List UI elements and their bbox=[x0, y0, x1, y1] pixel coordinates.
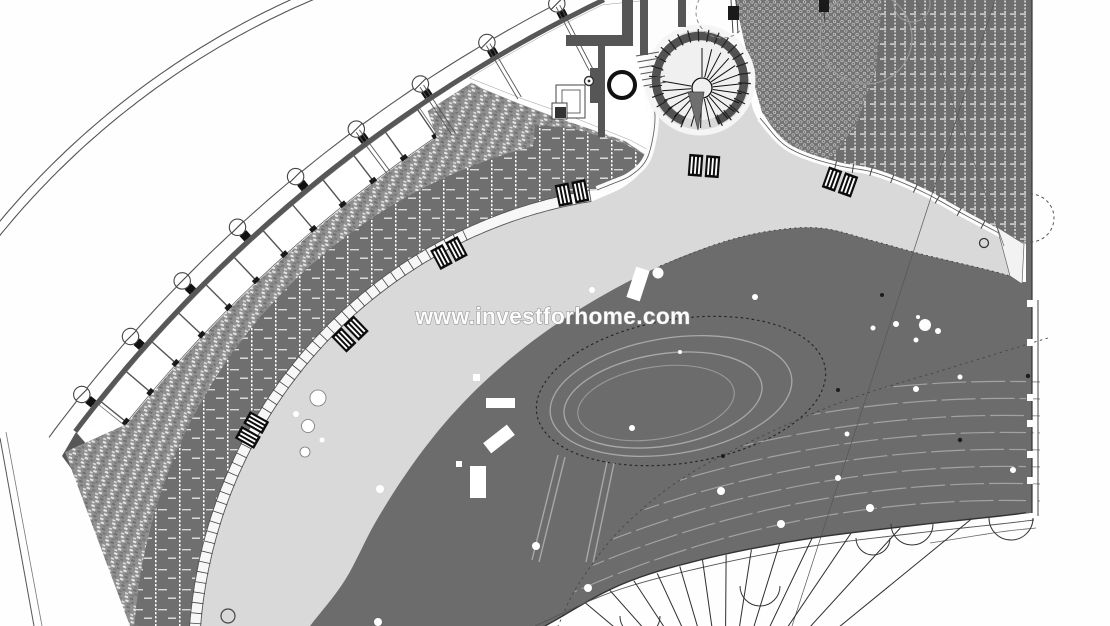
svg-text:www.investforhome.com: www.investforhome.com bbox=[414, 303, 690, 329]
